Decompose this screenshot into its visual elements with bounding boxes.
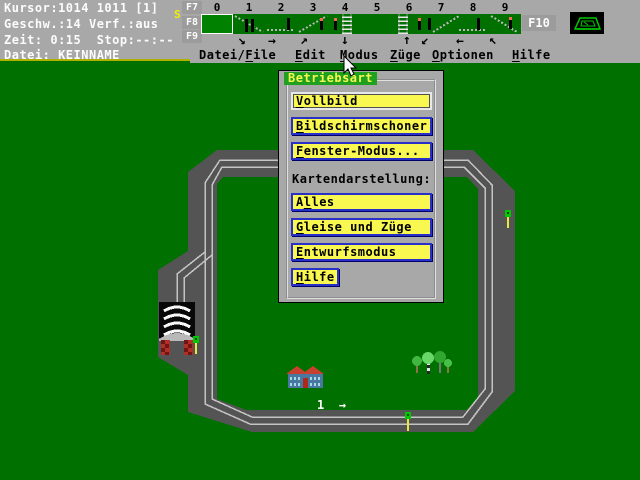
menu-item-optionen[interactable]: Optionen [432, 48, 494, 62]
menu-edit-key: E [295, 48, 303, 62]
dialog-group-frame [286, 79, 436, 299]
arrow-down-icon: ↓ [341, 35, 349, 47]
platform-label: 1 → [317, 398, 346, 412]
entwurfsmodus-button[interactable]: Entwurfsmodus [291, 243, 432, 261]
dialog-title: Betriebsart [284, 72, 377, 85]
arrow-downleft-icon: ↙ [421, 35, 429, 47]
menu-hilfe-key: H [512, 48, 520, 62]
tool-digit-8: 8 [457, 1, 489, 14]
menu-item-zuege[interactable]: Züge [390, 48, 421, 62]
track-tool-icons [201, 14, 521, 34]
fkey-f9-label: F9 [182, 30, 202, 43]
tool-digit-5: 5 [361, 1, 393, 14]
platform-number: 1 [317, 398, 324, 412]
entwurf-post: ntwurfsmodus [304, 245, 397, 259]
dialog-hilfe-key: H [296, 270, 304, 284]
bildschirmschoner-button[interactable]: Bildschirmschoner [291, 117, 432, 135]
arrow-right-icon: → [268, 36, 276, 48]
arrow-up-icon: ↑ [403, 35, 411, 47]
menu-datei-post: ile [253, 48, 276, 62]
status-speed: Geschw.:14 Verf.:aus [4, 17, 159, 31]
vollbild-key: V [296, 94, 304, 108]
bildschirmschoner-key: B [296, 119, 304, 133]
arrow-downright-icon: ↘ [238, 35, 246, 47]
menu-item-datei[interactable]: Datei/File [199, 48, 276, 62]
menu-datei-key: F [245, 48, 253, 62]
tool-digit-3: 3 [297, 1, 329, 14]
betriebsart-dialog: Betriebsart Vollbild Bildschirmschoner F… [278, 70, 444, 303]
menu-item-hilfe[interactable]: Hilfe [512, 48, 551, 62]
mouse-cursor-icon [343, 56, 359, 78]
tool-digit-1: 1 [233, 1, 265, 14]
fkey-f7-label: F7 [182, 1, 202, 14]
bildschirmschoner-post: ildschirmschoner [304, 119, 428, 133]
alles-post: les [311, 195, 334, 209]
kartendarstellung-label: Kartendarstellung: [292, 172, 431, 186]
gleise-und-zuege-button[interactable]: Gleise und Züge [291, 218, 432, 236]
fenster-key: F [296, 144, 304, 158]
arrow-upright-icon: ↗ [300, 35, 308, 47]
menu-item-edit[interactable]: Edit [295, 48, 326, 62]
gleise-post: leise und Züge [304, 220, 412, 234]
tool-digit-4: 4 [329, 1, 361, 14]
fenster-modus-button[interactable]: Fenster-Modus... [291, 142, 432, 160]
app-screen: 1 → Kursor:1014 1011 [1] Geschw.:14 Verf… [0, 0, 640, 480]
tool-digit-6: 6 [393, 1, 425, 14]
arrow-left-icon: ← [456, 36, 464, 48]
alles-pre: A [296, 195, 304, 209]
s-indicator: S [174, 8, 181, 21]
fkey-f10-label: F10 [522, 15, 556, 31]
tool-cell-selected[interactable] [201, 14, 233, 34]
alles-button[interactable]: Alles [291, 193, 432, 211]
menu-datei-pre: Datei/ [199, 48, 245, 62]
platform-arrow-icon: → [339, 398, 346, 412]
tool-digit-9: 9 [489, 1, 521, 14]
dialog-hilfe-button[interactable]: Hilfe [291, 268, 339, 286]
status-cursor: Kursor:1014 1011 [1] [4, 1, 159, 15]
menu-hilfe-post: ilfe [520, 48, 551, 62]
dialog-hilfe-post: ilfe [304, 270, 335, 284]
entwurf-key: E [296, 245, 304, 259]
tool-digit-0: 0 [201, 1, 233, 14]
tool-digit-2: 2 [265, 1, 297, 14]
status-file: Datei: KEINNAME [4, 48, 120, 62]
menu-zuege-key: Z [390, 48, 398, 62]
vollbild-post: ollbild [304, 94, 358, 108]
gleise-key: G [296, 220, 304, 234]
menu-optionen-post: ptionen [440, 48, 494, 62]
track-tool-strip[interactable] [201, 14, 521, 34]
fkey-f8-label: F8 [182, 16, 202, 29]
tool-digit-7: 7 [425, 1, 457, 14]
arrow-upleft-icon: ↖ [489, 35, 497, 47]
menu-edit-post: dit [303, 48, 326, 62]
vollbild-button[interactable]: Vollbild [291, 92, 432, 110]
status-time: Zeit: 0:15 Stop:--:-- [4, 33, 174, 47]
locomotive-icon [570, 12, 604, 34]
menu-optionen-key: O [432, 48, 440, 62]
fenster-post: enster-Modus... [304, 144, 420, 158]
menu-zuege-post: üge [398, 48, 421, 62]
train-logo-button[interactable] [570, 12, 604, 34]
